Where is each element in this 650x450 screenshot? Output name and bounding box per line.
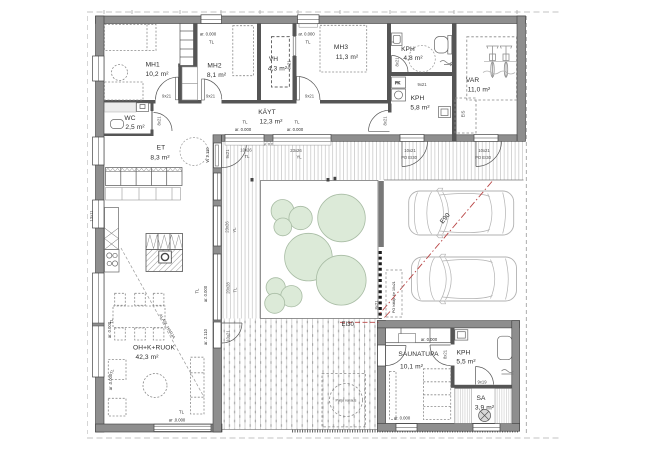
svg-text:11,0 m²: 11,0 m²: [468, 87, 491, 94]
svg-text:9x21: 9x21: [206, 94, 216, 99]
svg-text:YL: YL: [296, 155, 302, 160]
svg-text:SA: SA: [477, 395, 486, 402]
svg-text:ar. 0.000: ar. 0.000: [394, 416, 411, 421]
svg-text:WC: WC: [124, 115, 135, 122]
svg-text:8x21: 8x21: [383, 116, 388, 126]
svg-text:ar. 0.000: ar. 0.000: [421, 337, 438, 342]
svg-text:8x21: 8x21: [287, 60, 292, 70]
svg-text:8,1 m²: 8,1 m²: [207, 72, 227, 79]
svg-text:ar .0.000: ar .0.000: [108, 373, 113, 390]
svg-text:3,9 m²: 3,9 m²: [475, 405, 495, 412]
svg-text:5,5 m²: 5,5 m²: [456, 359, 476, 366]
svg-text:YL: YL: [232, 227, 237, 233]
svg-text:TL: TL: [243, 120, 249, 125]
svg-text:OH+K+RUOK: OH+K+RUOK: [133, 345, 175, 352]
svg-text:VH: VH: [269, 56, 278, 63]
svg-text:13x11: 13x11: [89, 210, 94, 222]
svg-text:10x21: 10x21: [478, 148, 490, 153]
svg-text:ar. 0.000: ar. 0.000: [287, 127, 304, 132]
svg-text:20x28: 20x28: [226, 282, 231, 294]
svg-text:KPH: KPH: [401, 46, 415, 53]
svg-text:8x21: 8x21: [443, 349, 448, 359]
svg-text:PO EI30: PO EI30: [475, 155, 491, 160]
svg-text:ET: ET: [157, 145, 166, 152]
svg-text:TL: TL: [295, 120, 301, 125]
svg-text:10x21: 10x21: [404, 148, 416, 153]
svg-text:ar .0.000: ar .0.000: [169, 418, 186, 423]
svg-text:10x26: 10x26: [240, 148, 252, 153]
svg-text:4,8 m²: 4,8 m²: [403, 55, 423, 62]
svg-text:TL: TL: [209, 40, 215, 45]
svg-text:ar. 0.000: ar. 0.000: [203, 285, 208, 302]
svg-text:PO hätäp. tie 10x21: PO hätäp. tie 10x21: [392, 281, 396, 313]
svg-text:EIS: EIS: [461, 110, 466, 117]
svg-text:TL: TL: [179, 410, 185, 415]
svg-text:MH1: MH1: [146, 62, 160, 69]
svg-text:KPH: KPH: [411, 95, 425, 102]
svg-text:8x21: 8x21: [374, 300, 379, 310]
svg-text:SAUNATUPA: SAUNATUPA: [398, 351, 439, 358]
svg-text:9x19: 9x19: [477, 379, 487, 384]
svg-text:5,8 m²: 5,8 m²: [410, 105, 430, 112]
svg-text:TL: TL: [245, 154, 251, 159]
svg-text:10x21: 10x21: [226, 330, 231, 342]
svg-text:ar. 0.000: ar. 0.000: [298, 32, 315, 37]
svg-text:10,2 m²: 10,2 m²: [145, 71, 169, 78]
svg-text:MH3: MH3: [334, 44, 348, 51]
svg-text:MH2: MH2: [207, 63, 221, 70]
svg-text:ar. 0.000: ar. 0.000: [235, 127, 252, 132]
svg-text:8x21: 8x21: [395, 57, 400, 67]
svg-text:8x21: 8x21: [157, 116, 162, 126]
svg-text:9x21: 9x21: [225, 149, 230, 159]
svg-text:TL: TL: [306, 40, 312, 45]
svg-text:ar. 2.110: ar. 2.110: [203, 328, 208, 345]
svg-text:PK: PK: [395, 81, 401, 85]
svg-text:Palju varaus: Palju varaus: [336, 399, 357, 403]
svg-text:42,3 m²: 42,3 m²: [135, 354, 159, 361]
svg-text:23x26: 23x26: [290, 148, 302, 153]
svg-text:9x21: 9x21: [305, 94, 315, 99]
svg-text:KPH: KPH: [457, 350, 471, 357]
svg-text:4,3 m²: 4,3 m²: [268, 66, 288, 73]
svg-text:8,3 m²: 8,3 m²: [150, 155, 170, 162]
svg-text:12,3 m²: 12,3 m²: [259, 119, 283, 126]
svg-text:9x21: 9x21: [162, 94, 172, 99]
svg-text:23x26: 23x26: [225, 221, 230, 233]
svg-text:KÄYT: KÄYT: [258, 108, 276, 116]
svg-text:2,5 m²: 2,5 m²: [125, 124, 145, 131]
svg-text:PO EI30: PO EI30: [401, 155, 417, 160]
svg-text:VAR: VAR: [466, 77, 480, 84]
svg-text:9x21: 9x21: [418, 82, 428, 87]
svg-text:TL: TL: [233, 287, 238, 293]
svg-text:EI30: EI30: [342, 322, 355, 328]
svg-text:ar. 0.000: ar. 0.000: [200, 32, 217, 37]
svg-text:ar. 0.000: ar. 0.000: [107, 321, 112, 338]
svg-text:TL: TL: [195, 288, 200, 294]
svg-text:W 2.110: W 2.110: [205, 147, 210, 163]
svg-text:10,1 m²: 10,1 m²: [400, 363, 424, 370]
svg-text:11,3 m²: 11,3 m²: [336, 54, 359, 61]
